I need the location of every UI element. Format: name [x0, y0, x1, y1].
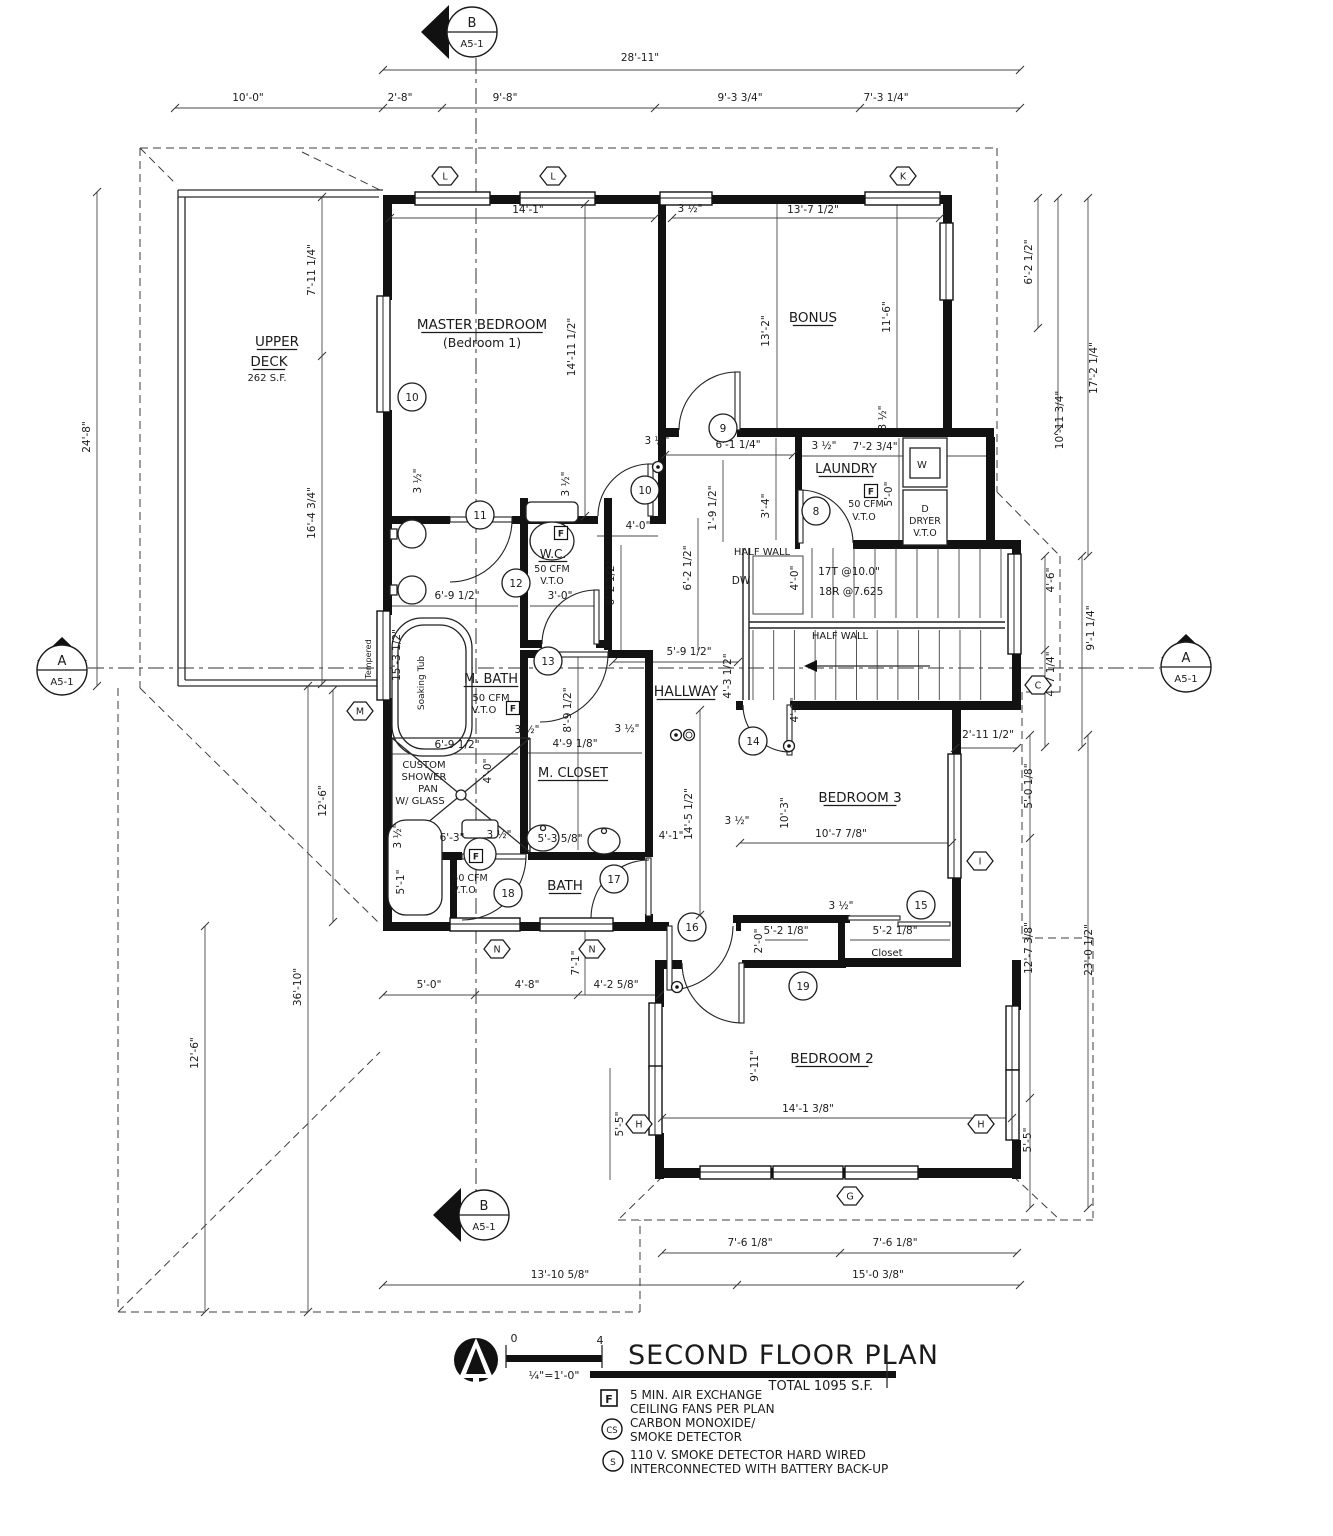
section-marker: AA5-1 [37, 637, 87, 695]
dim-label: 3 ½" [560, 471, 572, 496]
dim-label: V.T.O [452, 885, 475, 896]
window [1006, 1006, 1019, 1070]
dim-label: 3 ½" [392, 823, 404, 848]
soaking-tub [392, 618, 472, 756]
legend-fan-line2: CEILING FANS PER PLAN [630, 1402, 775, 1416]
dim-label: 7'-11 1/4" [306, 244, 318, 296]
dim-label: 7'-3 1/4" [863, 92, 908, 104]
dim-label: 24'-8" [81, 421, 93, 453]
dim-label: 15'-3 1/2" [391, 629, 403, 681]
door-tag-number: 19 [796, 981, 809, 993]
dim-label: HALF WALL [812, 631, 869, 642]
dim-label: 3'-0" [548, 590, 573, 602]
section-letter: A [58, 654, 67, 669]
door-tag-number: 10 [405, 392, 418, 404]
dim-label: 10'-0" [232, 92, 264, 104]
dim-label: 13'-7 1/2" [787, 204, 839, 216]
dim-label: 50 CFM [848, 499, 883, 510]
dim-label: 13'-10 5/8" [531, 1269, 589, 1281]
window-tag-letter: M [356, 707, 364, 718]
window [700, 1166, 771, 1179]
dim-label: SHOWER [402, 772, 447, 783]
window-tag-letter: N [493, 945, 500, 956]
window [540, 918, 613, 931]
smoke-detector-dot [674, 733, 678, 737]
dim-label: 6'-2 1/2" [682, 545, 694, 590]
section-sheet: A5-1 [1174, 674, 1197, 685]
dim-label: 3 ½" [514, 724, 539, 736]
door-tag-number: 11 [473, 510, 486, 522]
dim-label: 9'-11" [749, 1050, 761, 1082]
dim-label: (Bedroom 1) [443, 335, 521, 350]
room-label: BATH [547, 878, 583, 894]
window-tag-letter: L [442, 172, 448, 183]
scale-text: ¼"=1'-0" [529, 1369, 580, 1382]
dim-label: 6'-3" [440, 832, 465, 844]
dim-label: 17T @10.0" [818, 566, 880, 578]
dim-label: Soaking Tub [417, 656, 427, 711]
dim-label: 4'-8" [515, 979, 540, 991]
bath-sink [588, 828, 620, 854]
window [377, 296, 390, 412]
legend-s-line2: INTERCONNECTED WITH BATTERY BACK-UP [630, 1462, 888, 1476]
dim-label: PAN [418, 784, 438, 795]
legend-cs-line1: CARBON MONOXIDE/ [630, 1416, 756, 1430]
room-label: HALLWAY [654, 684, 719, 700]
dim-label: 4'-0" [789, 566, 801, 591]
dim-label: 4'-0" [626, 520, 651, 532]
dim-label: 15'-0 3/8" [852, 1269, 904, 1281]
dim-label: Tempered [364, 639, 373, 679]
dim-label: 3 ½" [877, 405, 889, 430]
dim-label: 16'-4 3/4" [306, 487, 318, 539]
dim-label: 50 CFM [452, 873, 487, 884]
floor-plan-svg: MASTER BEDROOM(Bedroom 1)BONUSLAUNDRYW.C… [0, 0, 1333, 1536]
dim-label: 6'-2 1/2" [605, 560, 617, 605]
door-tag-number: 16 [685, 922, 699, 934]
section-letter: B [468, 16, 477, 31]
dim-label: 13'-2" [760, 315, 772, 347]
door-tag-number: 18 [501, 888, 514, 900]
section-sheet: A5-1 [472, 1222, 495, 1233]
dim-label: V.T.O [540, 576, 563, 587]
dim-label: 14'-5 1/2" [683, 788, 695, 840]
dim-label: 3 ½" [724, 815, 749, 827]
dim-label: 14'-11 1/2" [566, 318, 578, 376]
dim-label: 8'-9 1/2" [562, 687, 574, 732]
window [845, 1166, 918, 1179]
room-label: BEDROOM 2 [790, 1051, 873, 1067]
mbath-sink [390, 520, 426, 548]
dim-label: 5'-5" [1022, 1128, 1034, 1153]
dim-label: 6'-9 1/2" [434, 739, 479, 751]
window [865, 192, 940, 205]
dim-label: Closet [871, 948, 902, 959]
window-tag-letter: H [977, 1120, 984, 1131]
window [1008, 554, 1021, 654]
dim-label: 5'-1" [395, 870, 407, 895]
legend-s-line1: 110 V. SMOKE DETECTOR HARD WIRED [630, 1448, 866, 1462]
dim-label: 7'-1" [570, 951, 582, 976]
dim-label: D [921, 504, 928, 515]
door-tag-number: 10 [638, 485, 651, 497]
dim-label: 3 ½" [486, 829, 511, 841]
dim-label: 4'-2 5/8" [593, 979, 638, 991]
dim-label: CUSTOM [402, 760, 445, 771]
section-letter: B [480, 1199, 489, 1214]
dim-label: DW [732, 575, 751, 587]
dim-label: 23'-0 1/2" [1083, 924, 1095, 976]
dim-label: 5'-2 1/8" [872, 925, 917, 937]
window [773, 1166, 843, 1179]
dim-label: 3 ½" [677, 203, 702, 215]
legend: F 5 MIN. AIR EXCHANGE CEILING FANS PER P… [601, 1388, 888, 1476]
window-tag-letter: C [1035, 681, 1042, 692]
room-label: M. BATH [464, 672, 518, 687]
dim-label: 28'-11" [621, 52, 659, 64]
dim-label: 12'-6" [189, 1037, 201, 1069]
dim-label: 14'-1" [512, 204, 544, 216]
window-tag-letter: L [550, 172, 556, 183]
door-tag-number: 12 [509, 578, 522, 590]
smoke-detector-dot [656, 465, 660, 469]
dim-label: V.T.O [913, 528, 936, 539]
dim-label: 7'-2 3/4" [852, 441, 897, 453]
section-marker: BA5-1 [421, 5, 497, 59]
dim-label: 17'-2 1/4" [1088, 342, 1100, 394]
stair-direction-arrow [804, 660, 817, 672]
scale-four: 4 [597, 1334, 604, 1347]
dim-label: 10'-3" [779, 797, 791, 829]
title-block: 0 4 ¼"=1'-0" SECOND FLOOR PLAN TOTAL 109… [454, 1332, 939, 1476]
room-label: BEDROOM 3 [818, 790, 901, 806]
dim-label: 5'-9 1/2" [666, 646, 711, 658]
window-tag-letter: H [635, 1120, 642, 1131]
dim-label: 5'-3 5/8" [537, 833, 582, 845]
dim-label: 10'-7 7/8" [815, 828, 867, 840]
dim-label: 3 ½" [412, 468, 424, 493]
dim-label: 7'-6 1/8" [727, 1237, 772, 1249]
dim-label: V.T.O [472, 705, 497, 716]
dim-label: 12'-6" [317, 785, 329, 817]
room-label: DECK [250, 354, 288, 370]
dim-label: 6'-9 1/2" [434, 590, 479, 602]
dim-label: 2'-8" [388, 92, 413, 104]
legend-cs-line2: SMOKE DETECTOR [630, 1430, 742, 1444]
dim-label: 9'-3 3/4" [717, 92, 762, 104]
dim-label: 4'-9 1/8" [552, 738, 597, 750]
section-marker-arrow [421, 5, 449, 59]
fan-icon-letter: F [868, 488, 874, 498]
dim-label: 3 ½" [828, 900, 853, 912]
dim-label: 6'-2 1/2" [1023, 239, 1035, 284]
room-label: BONUS [789, 310, 837, 326]
window [948, 754, 961, 878]
section-marker: AA5-1 [1161, 634, 1211, 692]
dim-label: 5'-0" [417, 979, 442, 991]
dim-label: 5'-0" [883, 482, 895, 507]
s-symbol: S [610, 1458, 616, 1468]
smoke-detector-dot [675, 985, 679, 989]
dim-label: 2'-0" [753, 929, 765, 954]
scale-zero: 0 [511, 1332, 518, 1345]
door-tag-number: 13 [541, 656, 554, 668]
window [450, 918, 520, 931]
door-tag-number: 15 [914, 900, 927, 912]
window-tag-letter: N [588, 945, 595, 956]
window [377, 611, 390, 700]
dim-label: W [917, 460, 927, 471]
room-label: UPPER [255, 334, 299, 350]
window [649, 1003, 662, 1069]
fan-icon-letter: F [558, 530, 564, 540]
legend-fan-line1: 5 MIN. AIR EXCHANGE [630, 1388, 762, 1402]
door-tag-number: 17 [607, 874, 620, 886]
dim-label: 3 ½" [644, 435, 669, 447]
dim-label: 11'-6" [881, 301, 893, 333]
dim-label: 18R @7.625 [819, 586, 884, 598]
dim-label: 10'-11 3/4" [1054, 391, 1066, 449]
section-sheet: A5-1 [50, 677, 73, 688]
dim-label: 5'-2 1/8" [763, 925, 808, 937]
section-marker: BA5-1 [433, 1188, 509, 1242]
dim-label: W/ GLASS [395, 796, 445, 807]
dim-label: 5'-0 1/8" [1023, 763, 1035, 808]
fan-icon-letter: F [510, 705, 516, 715]
co-smoke-detector-icon [684, 730, 695, 741]
door-tag-number: 8 [813, 506, 820, 518]
room-label: W.C. [540, 547, 567, 561]
dim-label: 262 S.F. [247, 373, 286, 384]
section-letter: A [1182, 651, 1191, 666]
fan-symbol: F [605, 1393, 613, 1406]
fan-icon-letter: F [473, 853, 479, 863]
dim-label: 4'-0" [482, 759, 494, 784]
dim-label: 12'-7 3/8" [1023, 922, 1035, 974]
north-arrow-icon [454, 1338, 498, 1384]
window [940, 223, 953, 300]
dim-label: 4'-0" [789, 698, 801, 723]
dim-label: 9'-1 1/4" [1085, 605, 1097, 650]
room-label: LAUNDRY [815, 462, 877, 477]
dim-label: HALF WALL [734, 547, 791, 558]
dim-label: 5'-5" [614, 1112, 626, 1137]
room-label: MASTER BEDROOM [417, 317, 547, 333]
window [1006, 1070, 1019, 1140]
window [415, 192, 490, 205]
dim-label: V.T.O [852, 512, 875, 523]
dim-label: 4'-1" [659, 830, 684, 842]
title-underline [590, 1371, 896, 1378]
upper-deck-outline [178, 190, 383, 686]
dim-label: 4'-6" [1045, 568, 1057, 593]
plan-title: SECOND FLOOR PLAN [628, 1340, 939, 1371]
dim-label: 36'-10" [292, 968, 304, 1006]
door-tag-number: 14 [746, 736, 760, 748]
window-tag-letter: I [979, 857, 982, 868]
dim-label: 50 CFM [472, 693, 509, 704]
window-tag-letter: G [846, 1192, 853, 1203]
scale-bar: 0 4 ¼"=1'-0" [506, 1332, 604, 1382]
section-sheet: A5-1 [460, 39, 483, 50]
plan-total-sf: TOTAL 1095 S.F. [768, 1379, 874, 1394]
dim-label: 14'-1 3/8" [782, 1103, 834, 1115]
section-marker-arrow [433, 1188, 461, 1242]
floor-plan-page: { "title_block": { "title": "SECOND FLOO… [0, 0, 1333, 1536]
dim-label: 4'-3 1/2" [722, 653, 734, 698]
dim-label: 7'-6 1/8" [872, 1237, 917, 1249]
dim-label: 2'-11 1/2" [962, 729, 1014, 741]
cs-symbol: CS [606, 1426, 617, 1436]
door-tag-number: 9 [720, 423, 727, 435]
dim-label: 9'-8" [493, 92, 518, 104]
smoke-detector-dot [787, 744, 791, 748]
dim-label: DRYER [909, 516, 941, 527]
section-lines [88, 58, 1160, 1212]
dim-label: 3'-4" [760, 494, 772, 519]
dim-label: 50 CFM [534, 564, 569, 575]
window-tag-letter: K [900, 172, 907, 183]
mbath-sink [390, 576, 426, 604]
dim-label: 3 ½" [614, 723, 639, 735]
room-label: M. CLOSET [538, 766, 608, 781]
dim-label: 3 ½" [811, 440, 836, 452]
dim-label: 1'-9 1/2" [707, 485, 719, 530]
